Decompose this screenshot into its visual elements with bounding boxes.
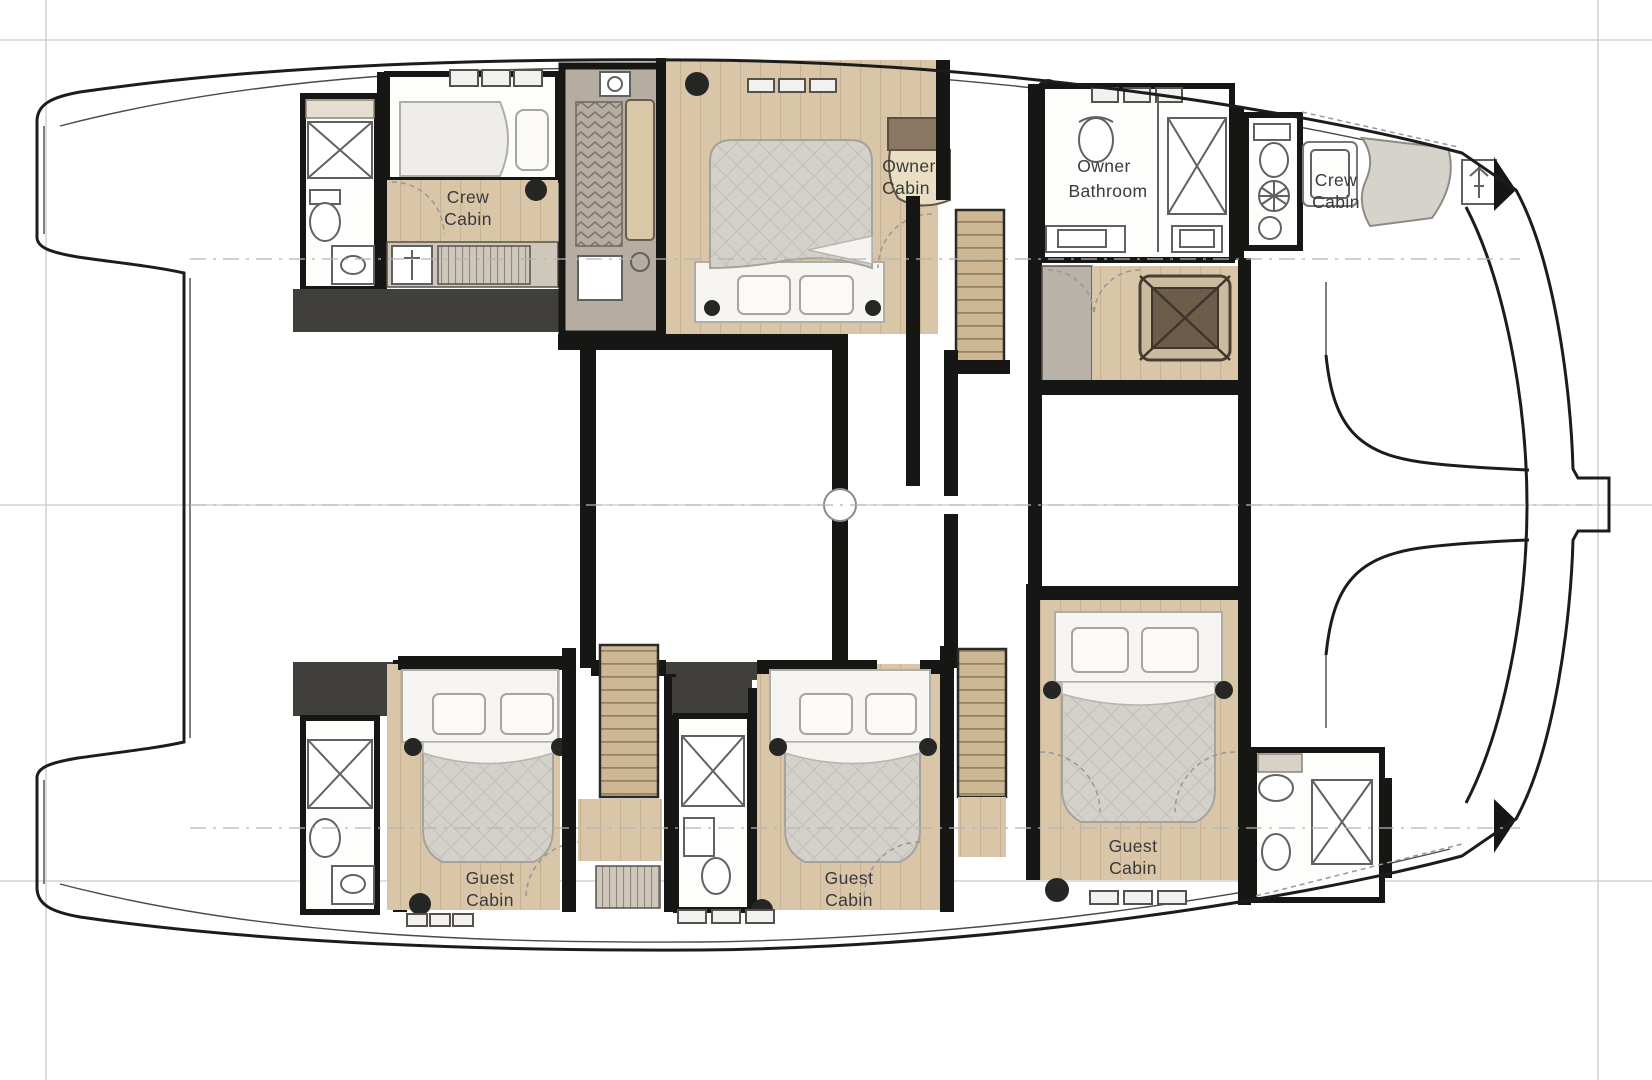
staircase-stbd (958, 649, 1006, 797)
hatch-window (712, 910, 740, 923)
hatch-window (1124, 891, 1152, 904)
pillow (800, 276, 853, 314)
bathroom-shelf (306, 100, 374, 118)
wardrobe-cabinets (1042, 266, 1092, 382)
deck-fitting-dot (704, 300, 720, 316)
wall (1232, 108, 1244, 260)
wall (1238, 258, 1251, 905)
wall (656, 58, 666, 334)
deck-fitting-dot (525, 179, 547, 201)
hatch-window (450, 70, 478, 86)
sink-cabinet-icon (332, 866, 374, 904)
hatch-window (1158, 891, 1186, 904)
sink-cabinet-icon (332, 246, 374, 284)
wall (940, 646, 954, 912)
toilet-icon (702, 858, 730, 894)
toilet-icon (1262, 834, 1290, 870)
wall (1026, 584, 1040, 880)
hatch-window (453, 914, 473, 926)
hull-void-panel (293, 289, 560, 332)
hatch-window (482, 70, 510, 86)
label-owner-cabin-line2: Cabin (882, 178, 930, 198)
deck-fitting-dot (865, 300, 881, 316)
equipment-unit (626, 100, 654, 240)
hatch-window (810, 79, 836, 92)
pillow (433, 694, 485, 734)
catamaran-deck-plan: Crew Cabin Owner Cabin Owner Bathroom Cr… (0, 0, 1652, 1080)
hatch-window (678, 910, 706, 923)
cistern-icon (1254, 124, 1290, 140)
stair-landing-floor (578, 799, 662, 861)
pillow (1072, 628, 1128, 672)
pillow (866, 694, 916, 734)
deck-fitting-dot (1045, 878, 1069, 902)
single-bed (400, 102, 508, 176)
wall (1028, 380, 1245, 395)
hatch-window (779, 79, 805, 92)
wall (1028, 84, 1042, 394)
floor-hatch-icon (578, 256, 622, 300)
sink-round-icon (1259, 217, 1281, 239)
wall (398, 656, 562, 670)
pillow (1142, 628, 1198, 672)
wall (944, 514, 958, 668)
staircase-port (956, 210, 1004, 364)
deck-fitting-dot (1043, 681, 1061, 699)
wall (936, 60, 950, 200)
label-guest-cabin-fore-line1: Guest (1109, 836, 1158, 856)
pillow (800, 694, 852, 734)
catamaran-deck-plan-page: Crew Cabin Owner Cabin Owner Bathroom Cr… (0, 0, 1652, 1080)
hull-void-panel (672, 677, 752, 715)
label-crew-cabin-aft-line2: Cabin (444, 209, 492, 229)
toilet-icon (1260, 143, 1288, 177)
label-guest-cabin-mid-line2: Cabin (825, 890, 873, 910)
hatch-window (514, 70, 542, 86)
wall (906, 196, 920, 486)
deck-fitting-dot (404, 738, 422, 756)
wall (562, 648, 576, 912)
hull-void-panel (293, 662, 398, 716)
label-guest-cabin-aft-line2: Cabin (466, 890, 514, 910)
wall (580, 336, 596, 668)
deck-fitting-dot (769, 738, 787, 756)
hatch-window (407, 914, 427, 926)
pillow (516, 110, 548, 170)
ladder-icon (576, 102, 622, 246)
label-crew-cabin-fore-line2: Cabin (1312, 192, 1360, 212)
label-owner-bathroom-line2: Bathroom (1068, 181, 1147, 201)
toilet-icon (310, 819, 340, 857)
bathroom-counter (1258, 754, 1302, 772)
deck-fitting-dot (409, 893, 431, 915)
label-guest-cabin-mid-line1: Guest (825, 868, 874, 888)
deck-fitting-dot (919, 738, 937, 756)
label-owner-bathroom-line1: Owner (1077, 156, 1131, 176)
pillow (501, 694, 553, 734)
hatch-window (430, 914, 450, 926)
toilet-icon (310, 203, 340, 241)
wall (1028, 586, 1250, 600)
stair-landing-floor (958, 797, 1006, 857)
hatch-window (746, 910, 774, 923)
label-crew-cabin-aft-line1: Crew (447, 187, 489, 207)
label-crew-cabin-fore-line1: Crew (1315, 170, 1357, 190)
label-guest-cabin-fore-line2: Cabin (1109, 858, 1157, 878)
label-guest-cabin-aft-line1: Guest (466, 868, 515, 888)
wardrobe-icon (596, 866, 660, 908)
wardrobe-icon (438, 246, 530, 284)
hatch-window (1090, 891, 1118, 904)
windlass-icon (600, 72, 630, 96)
pillow (738, 276, 790, 314)
deck-fitting-dot (1215, 681, 1233, 699)
toilet-tank-icon (310, 190, 340, 204)
label-owner-cabin-line1: Owner (882, 156, 936, 176)
wall (944, 350, 958, 496)
deck-fitting-dot (685, 72, 709, 96)
staircase-mid (600, 645, 658, 797)
hatch-window (748, 79, 774, 92)
sink-cabinet-icon (684, 818, 714, 856)
sink-icon (1259, 775, 1293, 801)
wall (558, 334, 848, 350)
